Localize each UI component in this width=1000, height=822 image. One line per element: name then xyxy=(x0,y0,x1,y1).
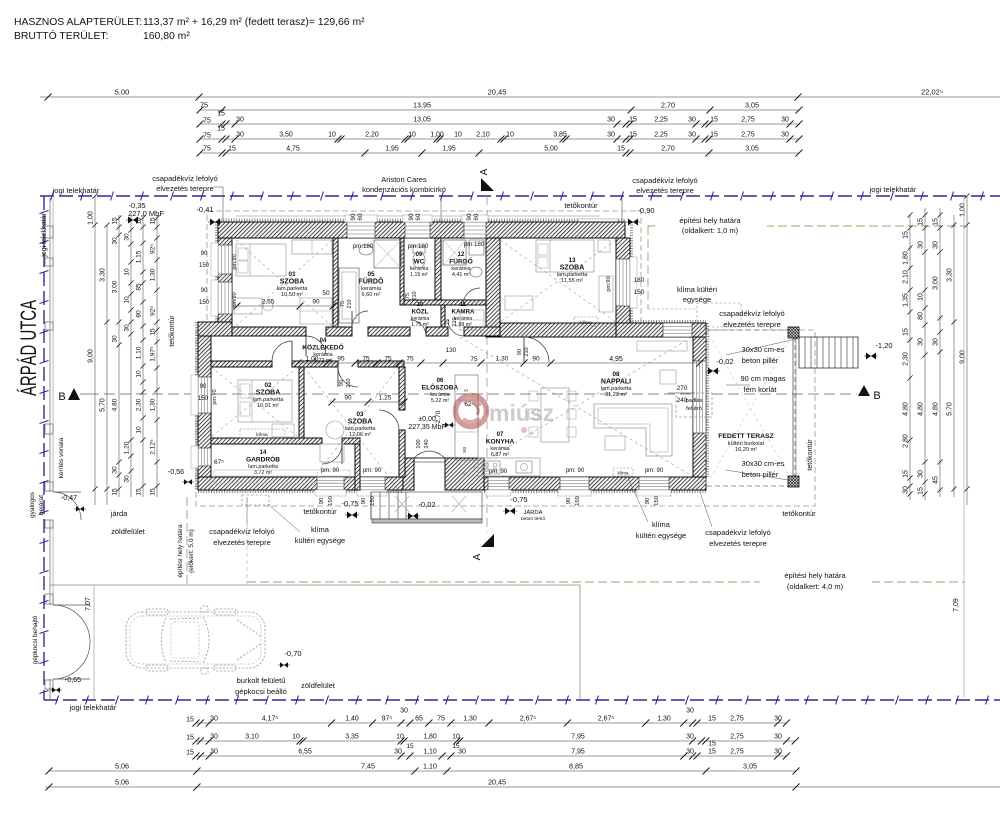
svg-text:227,0 MbF: 227,0 MbF xyxy=(128,209,164,218)
svg-text:7,95: 7,95 xyxy=(571,749,585,756)
svg-text:1,30: 1,30 xyxy=(463,716,477,723)
svg-text:jogi telekhatár: jogi telekhatár xyxy=(41,213,48,258)
svg-text:1,15: 1,15 xyxy=(136,250,143,263)
svg-text:pm:90: pm:90 xyxy=(232,254,238,269)
svg-text:30: 30 xyxy=(781,117,789,124)
svg-text:30: 30 xyxy=(903,486,910,494)
svg-text:elvezetés terepre: elvezetés terepre xyxy=(636,186,694,195)
svg-text:06: 06 xyxy=(437,378,444,384)
svg-text:90: 90 xyxy=(200,384,207,390)
svg-text:210: 210 xyxy=(452,317,458,326)
svg-text:3,50: 3,50 xyxy=(279,132,293,139)
svg-text:8,85: 8,85 xyxy=(569,762,583,771)
svg-text:22,02⁵: 22,02⁵ xyxy=(921,88,943,97)
svg-text:30: 30 xyxy=(686,749,694,756)
svg-text:SZOBA: SZOBA xyxy=(560,265,585,272)
svg-text:zöldfelület: zöldfelület xyxy=(111,527,146,536)
svg-text:5,06: 5,06 xyxy=(115,762,129,771)
svg-text:75: 75 xyxy=(405,293,411,299)
svg-text:90: 90 xyxy=(566,498,572,504)
svg-text:90: 90 xyxy=(361,498,367,504)
svg-text:6,87 m²: 6,87 m² xyxy=(491,452,509,458)
svg-text:3,05: 3,05 xyxy=(745,101,759,110)
svg-text:15: 15 xyxy=(217,111,225,118)
svg-text:gépkocsi behajtó: gépkocsi behajtó xyxy=(32,615,39,664)
svg-text:2,80: 2,80 xyxy=(903,434,910,448)
svg-text:NAPPALI: NAPPALI xyxy=(601,379,631,386)
svg-text:építési hely határa: építési hely határa xyxy=(679,216,741,225)
svg-text:90: 90 xyxy=(517,349,523,355)
svg-text:92⁵: 92⁵ xyxy=(150,244,157,254)
svg-text:11,55 m²: 11,55 m² xyxy=(561,278,583,284)
svg-text:75: 75 xyxy=(203,146,211,153)
svg-text:5,70: 5,70 xyxy=(947,402,954,416)
svg-text:130: 130 xyxy=(446,347,457,354)
svg-text:15: 15 xyxy=(708,741,716,748)
svg-text:1,35: 1,35 xyxy=(903,293,910,307)
svg-text:30: 30 xyxy=(236,117,244,124)
svg-text:kerítés vonala: kerítés vonala xyxy=(58,437,65,478)
svg-text:pm:180: pm:180 xyxy=(353,243,374,250)
svg-text:90: 90 xyxy=(532,356,540,363)
svg-text:30: 30 xyxy=(688,117,696,124)
svg-text:1,40: 1,40 xyxy=(345,716,359,723)
svg-text:90: 90 xyxy=(201,288,208,294)
svg-text:2,25: 2,25 xyxy=(654,117,668,124)
svg-text:3,30: 3,30 xyxy=(100,268,107,282)
svg-text:1,00: 1,00 xyxy=(306,356,319,363)
svg-text:(előkert: 5,0 m): (előkert: 5,0 m) xyxy=(188,529,195,573)
svg-text:csapadékvíz lefolyó: csapadékvíz lefolyó xyxy=(632,176,697,185)
svg-text:WC: WC xyxy=(414,259,425,266)
svg-text:30: 30 xyxy=(688,132,696,139)
svg-text:4,80: 4,80 xyxy=(918,402,925,416)
svg-text:zöldfelület: zöldfelület xyxy=(301,681,336,690)
svg-text:10: 10 xyxy=(918,293,925,301)
svg-text:04: 04 xyxy=(320,338,327,344)
svg-text:FÜRDŐ: FÜRDŐ xyxy=(449,257,472,266)
svg-text:4,80: 4,80 xyxy=(903,402,910,416)
svg-text:150: 150 xyxy=(654,496,660,506)
svg-text:pm: 90: pm: 90 xyxy=(645,468,664,474)
svg-text:30: 30 xyxy=(774,734,782,741)
svg-text:pm:180: pm:180 xyxy=(464,241,485,248)
svg-text:tetőkontúr: tetőkontúr xyxy=(564,201,598,210)
svg-text:02: 02 xyxy=(264,382,272,389)
svg-text:miúsz: miúsz xyxy=(489,400,554,426)
svg-text:15: 15 xyxy=(708,716,716,723)
svg-text:-0,41: -0,41 xyxy=(196,205,213,214)
svg-text:2,20: 2,20 xyxy=(365,132,379,139)
svg-text:10: 10 xyxy=(124,268,131,276)
svg-text:A: A xyxy=(479,168,490,175)
svg-text:08: 08 xyxy=(612,371,620,378)
svg-text:180: 180 xyxy=(634,277,645,284)
svg-text:-0,75: -0,75 xyxy=(341,499,358,508)
svg-text:-0,02: -0,02 xyxy=(716,357,733,366)
svg-text:16,29 m²: 16,29 m² xyxy=(735,447,757,453)
svg-text:30: 30 xyxy=(124,233,131,241)
svg-text:4,95: 4,95 xyxy=(609,356,623,363)
svg-text:15: 15 xyxy=(903,231,910,239)
svg-text:2,75: 2,75 xyxy=(730,734,744,741)
svg-text:klíma: klíma xyxy=(256,432,268,438)
svg-text:30: 30 xyxy=(607,117,615,124)
svg-text:240: 240 xyxy=(677,397,688,404)
svg-text:2,75: 2,75 xyxy=(741,117,755,124)
svg-text:30: 30 xyxy=(400,708,408,715)
svg-text:klíma: klíma xyxy=(618,471,629,476)
svg-text:6,55: 6,55 xyxy=(298,749,312,756)
svg-text:80: 80 xyxy=(136,310,143,318)
svg-text:1,97⁵: 1,97⁵ xyxy=(150,346,157,362)
svg-text:13,05: 13,05 xyxy=(413,117,431,124)
svg-text:7,45: 7,45 xyxy=(361,762,375,771)
svg-text:30: 30 xyxy=(607,132,615,139)
svg-text:elvezetés terepre: elvezetés terepre xyxy=(709,539,767,548)
svg-text:járda: járda xyxy=(110,509,129,518)
svg-text:FEDETT TERASZ: FEDETT TERASZ xyxy=(718,433,774,440)
svg-text:30: 30 xyxy=(112,237,119,245)
svg-text:15: 15 xyxy=(186,735,194,742)
svg-text:gyalogos: gyalogos xyxy=(29,491,36,518)
svg-text:tetőkontúr: tetőkontúr xyxy=(169,315,176,347)
svg-text:9,00: 9,00 xyxy=(88,349,95,363)
svg-text:2,70: 2,70 xyxy=(661,101,675,110)
svg-text:15: 15 xyxy=(150,328,157,336)
svg-text:1,75 m²: 1,75 m² xyxy=(411,322,429,328)
svg-text:elvezetés terepre: elvezetés terepre xyxy=(723,320,781,329)
svg-text:15: 15 xyxy=(228,146,236,153)
svg-text:klíma kültéri: klíma kültéri xyxy=(677,285,717,294)
svg-text:KÖZL: KÖZL xyxy=(412,309,429,316)
svg-text:7,09: 7,09 xyxy=(953,598,960,612)
svg-text:75: 75 xyxy=(445,319,451,325)
svg-text:9,00: 9,00 xyxy=(960,350,967,364)
svg-text:bejárat: bejárat xyxy=(38,495,45,515)
svg-text:-0,65: -0,65 xyxy=(65,675,81,684)
svg-text:3,35: 3,35 xyxy=(345,734,359,741)
svg-text:KAMRA: KAMRA xyxy=(451,309,475,316)
svg-text:15: 15 xyxy=(136,488,143,496)
svg-text:30: 30 xyxy=(933,241,940,249)
svg-text:12,06 m²: 12,06 m² xyxy=(349,432,371,438)
svg-text:2,75: 2,75 xyxy=(730,749,744,756)
svg-text:2,67⁵: 2,67⁵ xyxy=(520,716,537,723)
svg-text:B: B xyxy=(873,390,880,402)
svg-text:burkolt felületű: burkolt felületű xyxy=(237,676,286,685)
svg-text:30x30 cm-es: 30x30 cm-es xyxy=(742,459,785,468)
svg-text:10,91 m²: 10,91 m² xyxy=(257,403,279,409)
svg-text:elvezetés terepre: elvezetés terepre xyxy=(156,184,214,193)
svg-text:10: 10 xyxy=(136,370,143,378)
svg-text:113,37 m² + 16,29 m² (fedett t: 113,37 m² + 16,29 m² (fedett terasz)= 12… xyxy=(143,17,365,28)
svg-text:227,35 MbF: 227,35 MbF xyxy=(408,424,445,431)
svg-text:45: 45 xyxy=(933,476,940,484)
svg-text:4,41 m²: 4,41 m² xyxy=(452,272,470,278)
svg-text:30: 30 xyxy=(124,475,131,483)
svg-text:tetőkontúr: tetőkontúr xyxy=(807,439,814,471)
svg-text:±0,00: ±0,00 xyxy=(418,416,436,423)
svg-text:pm:90: pm:90 xyxy=(232,292,238,307)
svg-text:építési hely határa: építési hely határa xyxy=(784,571,846,580)
svg-text:tetőkontúr: tetőkontúr xyxy=(303,507,337,516)
svg-text:2,30: 2,30 xyxy=(136,398,143,411)
svg-text:Ariston Cares: Ariston Cares xyxy=(381,175,427,184)
svg-text:1,30: 1,30 xyxy=(150,398,157,411)
svg-text:1,10: 1,10 xyxy=(136,346,143,359)
svg-text:2,12⁵: 2,12⁵ xyxy=(150,439,157,455)
svg-text:15: 15 xyxy=(112,217,119,225)
svg-text:150: 150 xyxy=(634,289,645,296)
svg-text:90: 90 xyxy=(344,395,352,402)
svg-text:1,80: 1,80 xyxy=(903,251,910,265)
svg-text:10: 10 xyxy=(292,734,300,741)
svg-text:-0,75: -0,75 xyxy=(510,495,527,504)
svg-text:fém korlát: fém korlát xyxy=(744,385,778,394)
svg-text:1,95: 1,95 xyxy=(385,146,399,153)
svg-text:4,75: 4,75 xyxy=(286,146,300,153)
svg-text:B: B xyxy=(58,391,65,403)
svg-text:15: 15 xyxy=(186,717,194,724)
svg-text:A: A xyxy=(472,553,483,560)
svg-text:65: 65 xyxy=(415,716,423,723)
svg-text:210: 210 xyxy=(347,299,353,308)
svg-text:KONYHA: KONYHA xyxy=(486,439,515,446)
svg-text:1,00: 1,00 xyxy=(430,132,444,139)
svg-text:5,70: 5,70 xyxy=(100,398,107,412)
svg-text:75: 75 xyxy=(203,118,211,125)
svg-text:30: 30 xyxy=(774,716,782,723)
svg-text:FÜRDŐ: FÜRDŐ xyxy=(359,277,384,286)
svg-text:pm: 90: pm: 90 xyxy=(363,468,382,474)
svg-text:kültéri egysége: kültéri egysége xyxy=(295,536,345,545)
svg-text:3,00: 3,00 xyxy=(933,276,940,290)
svg-text:beton pillér: beton pillér xyxy=(742,356,779,365)
svg-text:ÁRPÁD UTCA: ÁRPÁD UTCA xyxy=(16,300,41,396)
svg-text:klíma: klíma xyxy=(311,525,330,534)
svg-text:75: 75 xyxy=(470,356,478,363)
svg-text:20,45: 20,45 xyxy=(488,778,506,787)
svg-text:15: 15 xyxy=(617,146,625,153)
svg-text:60: 60 xyxy=(357,213,364,220)
svg-text:1,00: 1,00 xyxy=(88,211,95,225)
svg-text:3,10: 3,10 xyxy=(245,734,259,741)
svg-text:1,30: 1,30 xyxy=(150,268,157,281)
svg-text:BRUTTÓ TERÜLET:: BRUTTÓ TERÜLET: xyxy=(14,29,109,42)
svg-text:30: 30 xyxy=(236,132,244,139)
svg-text:15: 15 xyxy=(710,132,718,139)
svg-text:15: 15 xyxy=(708,749,716,756)
svg-text:1,30: 1,30 xyxy=(657,716,671,723)
svg-text:50: 50 xyxy=(322,290,330,297)
svg-text:15: 15 xyxy=(150,488,157,496)
svg-text:4,17⁵: 4,17⁵ xyxy=(262,716,279,723)
svg-text:-0,90: -0,90 xyxy=(637,206,654,215)
svg-text:5,00: 5,00 xyxy=(544,146,558,153)
svg-text:1,95: 1,95 xyxy=(442,146,456,153)
svg-text:90: 90 xyxy=(645,498,651,504)
svg-text:HASZNOS ALAPTERÜLET:: HASZNOS ALAPTERÜLET: xyxy=(14,16,142,28)
svg-text:30: 30 xyxy=(210,749,218,756)
svg-text:210: 210 xyxy=(412,291,418,300)
svg-text:kondenzációs kombicirkó: kondenzációs kombicirkó xyxy=(362,185,446,194)
svg-text:30: 30 xyxy=(918,470,925,478)
svg-text:pm:90: pm:90 xyxy=(212,389,218,404)
svg-text:15: 15 xyxy=(629,117,637,124)
svg-text:30: 30 xyxy=(394,749,402,756)
svg-text:3,72 m²: 3,72 m² xyxy=(254,470,272,476)
svg-text:1,10: 1,10 xyxy=(423,749,437,756)
svg-text:1,00: 1,00 xyxy=(960,203,967,217)
svg-text:30: 30 xyxy=(210,716,218,723)
svg-text:10: 10 xyxy=(452,734,460,741)
svg-text:GARDRÓB: GARDRÓB xyxy=(246,455,280,464)
svg-text:10: 10 xyxy=(454,132,462,139)
svg-text:30: 30 xyxy=(918,241,925,249)
svg-text:92⁵: 92⁵ xyxy=(150,306,157,316)
svg-text:egysége: egysége xyxy=(683,295,711,304)
svg-text:97⁵: 97⁵ xyxy=(382,716,393,723)
svg-text:30: 30 xyxy=(112,466,119,474)
svg-text:10: 10 xyxy=(408,132,416,139)
svg-text:10: 10 xyxy=(506,132,514,139)
svg-text:03: 03 xyxy=(356,411,364,418)
svg-text:jogi telekhatár: jogi telekhatár xyxy=(52,186,100,195)
svg-text:3,05: 3,05 xyxy=(743,762,757,771)
svg-text:1,30: 1,30 xyxy=(496,356,509,363)
svg-text:15: 15 xyxy=(406,743,414,750)
svg-text:1,80: 1,80 xyxy=(423,734,437,741)
svg-text:H: H xyxy=(464,388,467,393)
svg-text:2,10: 2,10 xyxy=(476,132,490,139)
svg-text:pm: 90: pm: 90 xyxy=(566,468,585,474)
svg-text:1,15 m²: 1,15 m² xyxy=(410,272,428,278)
svg-text:90: 90 xyxy=(339,380,345,386)
svg-text:csapadékvíz lefolyó: csapadékvíz lefolyó xyxy=(209,527,274,536)
svg-text:11: 11 xyxy=(460,302,467,308)
svg-text:67⁵: 67⁵ xyxy=(214,459,224,466)
svg-text:1,20: 1,20 xyxy=(124,441,131,454)
svg-text:150: 150 xyxy=(198,396,209,402)
svg-text:75: 75 xyxy=(340,301,346,307)
svg-text:5,06: 5,06 xyxy=(115,778,129,787)
svg-text:beton térkő: beton térkő xyxy=(521,516,545,522)
svg-text:6,60 m²: 6,60 m² xyxy=(362,292,381,298)
svg-text:85: 85 xyxy=(136,283,143,291)
svg-text:15: 15 xyxy=(903,470,910,478)
svg-text:1,25: 1,25 xyxy=(379,395,392,402)
svg-text:SZOBA: SZOBA xyxy=(280,279,305,286)
svg-text:pm: 90: pm: 90 xyxy=(321,468,340,474)
svg-text:15: 15 xyxy=(710,117,718,124)
svg-text:150: 150 xyxy=(199,300,210,306)
svg-text:100: 100 xyxy=(416,439,422,448)
svg-text:95: 95 xyxy=(337,356,345,363)
svg-text:270: 270 xyxy=(677,385,688,392)
svg-text:pm:90: pm:90 xyxy=(606,276,612,291)
svg-text:KÖZLEKEDŐ: KÖZLEKEDŐ xyxy=(302,343,343,352)
svg-text:90: 90 xyxy=(408,213,415,220)
svg-text:10: 10 xyxy=(396,734,404,741)
svg-text:SZOBA: SZOBA xyxy=(256,390,281,397)
svg-text:7,95: 7,95 xyxy=(571,734,585,741)
svg-text:20,45: 20,45 xyxy=(488,88,507,97)
svg-text:JÁRDA: JÁRDA xyxy=(523,509,542,516)
svg-text:pm:180: pm:180 xyxy=(408,243,429,250)
svg-text:30: 30 xyxy=(124,324,131,332)
svg-text:padlás: padlás xyxy=(685,398,702,404)
svg-text:2,25: 2,25 xyxy=(654,132,668,139)
svg-text:klíma: klíma xyxy=(652,520,671,529)
svg-text:jogi telekhatár: jogi telekhatár xyxy=(869,185,917,194)
svg-text:2,30: 2,30 xyxy=(903,352,910,366)
svg-text:05: 05 xyxy=(367,271,375,278)
svg-text:-1,20: -1,20 xyxy=(875,341,892,350)
svg-text:jogi telekhatár: jogi telekhatár xyxy=(69,703,117,712)
svg-text:csapadékvíz lefolyó: csapadékvíz lefolyó xyxy=(152,174,217,183)
svg-text:90: 90 xyxy=(319,498,325,504)
svg-text:15: 15 xyxy=(933,218,940,226)
svg-text:kültéri egysége: kültéri egysége xyxy=(636,531,686,540)
svg-text:75: 75 xyxy=(384,356,392,363)
svg-text:13,95: 13,95 xyxy=(413,101,431,110)
svg-text:ELŐSZOBA: ELŐSZOBA xyxy=(422,383,459,392)
svg-text:30: 30 xyxy=(112,335,119,343)
svg-text:feljáró: feljáró xyxy=(686,406,702,412)
svg-text:75: 75 xyxy=(437,716,445,723)
svg-text:30: 30 xyxy=(458,749,466,756)
svg-text:15: 15 xyxy=(150,217,157,225)
svg-text:elvezetés terepre: elvezetés terepre xyxy=(213,538,271,547)
svg-text:2,70: 2,70 xyxy=(661,146,675,153)
svg-text:5,22 m²: 5,22 m² xyxy=(431,398,449,404)
svg-text:210: 210 xyxy=(346,378,352,387)
svg-text:13: 13 xyxy=(568,257,576,264)
svg-text:klíma: klíma xyxy=(580,320,592,326)
svg-text:7,07: 7,07 xyxy=(85,597,92,611)
svg-text:31,23 m²: 31,23 m² xyxy=(605,392,627,398)
svg-text:tetőkontúr: tetőkontúr xyxy=(782,509,816,518)
svg-text:240: 240 xyxy=(424,439,430,448)
svg-text:10: 10 xyxy=(136,426,143,434)
svg-text:10: 10 xyxy=(328,132,336,139)
svg-text:5,00: 5,00 xyxy=(115,88,130,97)
svg-text:3,05: 3,05 xyxy=(745,146,759,153)
svg-text:15: 15 xyxy=(629,132,637,139)
svg-text:pm: 90: pm: 90 xyxy=(489,469,508,475)
svg-text:75: 75 xyxy=(200,101,208,110)
svg-text:2,55: 2,55 xyxy=(262,299,275,306)
svg-text:75: 75 xyxy=(203,133,211,140)
svg-text:30: 30 xyxy=(933,338,940,346)
svg-text:150: 150 xyxy=(328,496,334,506)
svg-text:75: 75 xyxy=(406,356,414,363)
svg-text:3,00: 3,00 xyxy=(112,280,119,293)
svg-text:-0,70: -0,70 xyxy=(284,649,301,658)
svg-text:30: 30 xyxy=(686,734,694,741)
svg-text:2,75: 2,75 xyxy=(741,132,755,139)
svg-text:14: 14 xyxy=(260,450,267,456)
svg-text:4,80: 4,80 xyxy=(112,398,119,411)
svg-text:15: 15 xyxy=(186,750,194,757)
svg-text:M3: M3 xyxy=(462,446,467,452)
svg-text:90: 90 xyxy=(312,299,320,306)
svg-text:2,10: 2,10 xyxy=(903,270,910,284)
svg-text:07: 07 xyxy=(497,432,504,438)
svg-text:150: 150 xyxy=(199,263,210,269)
svg-text:90: 90 xyxy=(466,213,473,220)
